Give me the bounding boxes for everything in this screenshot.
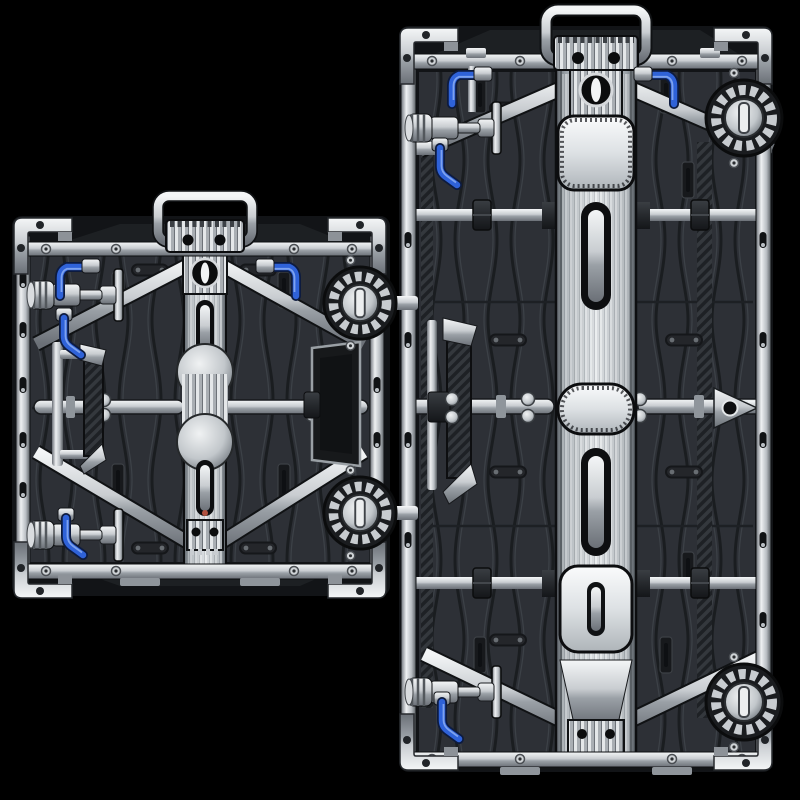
led-cabinet-small: [12, 196, 418, 598]
vent-slot: [666, 467, 702, 478]
clip: [474, 637, 486, 673]
vent-slot: [490, 335, 526, 346]
vent-slot: [490, 635, 526, 646]
product-render-canvas: [0, 0, 800, 800]
bottom-connector-block: [187, 520, 223, 550]
carbon-grip-bar: [427, 318, 477, 504]
vent-slot: [666, 335, 702, 346]
clip: [682, 162, 694, 198]
led-panels-illustration: [0, 0, 800, 800]
led-cabinet-large: [399, 10, 782, 775]
spine-plate-top: [558, 116, 634, 190]
vent-slot: [240, 543, 276, 554]
center-spine: [556, 64, 636, 762]
bracket-bar: [304, 342, 360, 466]
vent-slot: [490, 467, 526, 478]
vent-slot: [132, 543, 168, 554]
top-carry-handle: [158, 196, 252, 252]
clip: [660, 637, 672, 673]
center-spine: [177, 234, 233, 572]
top-carry-handle: [546, 10, 646, 70]
